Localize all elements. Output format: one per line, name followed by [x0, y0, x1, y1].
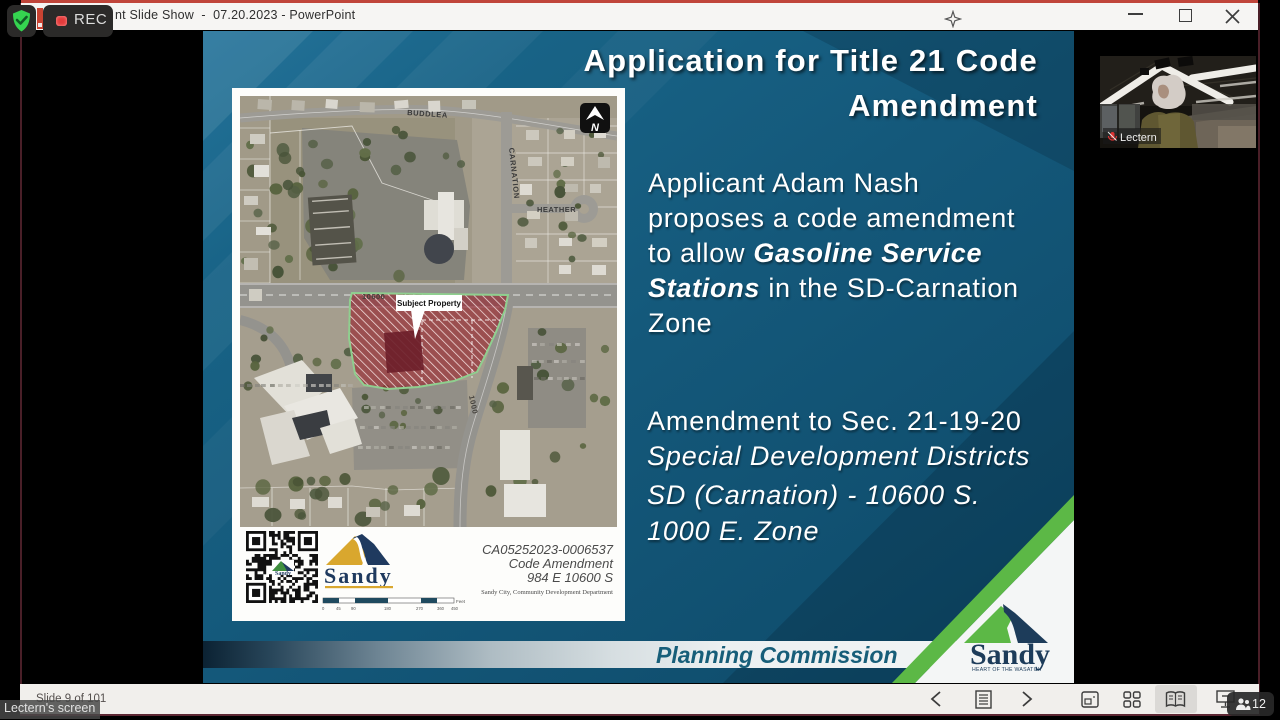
svg-text:10600: 10600 [362, 292, 385, 301]
svg-text:Sandy: Sandy [275, 571, 291, 577]
svg-text:Sandy: Sandy [324, 563, 393, 588]
svg-text:Feet: Feet [456, 599, 466, 604]
svg-text:90: 90 [351, 606, 356, 611]
svg-text:HEART OF THE WASATCH: HEART OF THE WASATCH [972, 667, 1042, 673]
svg-text:984 E 10600 S: 984 E 10600 S [527, 570, 613, 585]
svg-text:HEATHER: HEATHER [537, 205, 576, 214]
svg-text:360: 360 [437, 606, 445, 611]
svg-text:270: 270 [416, 606, 424, 611]
svg-text:N: N [591, 122, 600, 134]
svg-text:Sandy City, Community Developm: Sandy City, Community Development Depart… [481, 589, 613, 596]
svg-text:Code Amendment: Code Amendment [509, 556, 615, 571]
svg-text:Subject Property: Subject Property [397, 299, 462, 308]
svg-text:180: 180 [384, 606, 392, 611]
svg-text:CA05252023-0006537: CA05252023-0006537 [482, 542, 614, 557]
svg-text:Lectern: Lectern [1120, 132, 1157, 144]
svg-text:450: 450 [451, 606, 459, 611]
svg-text:45: 45 [336, 606, 341, 611]
